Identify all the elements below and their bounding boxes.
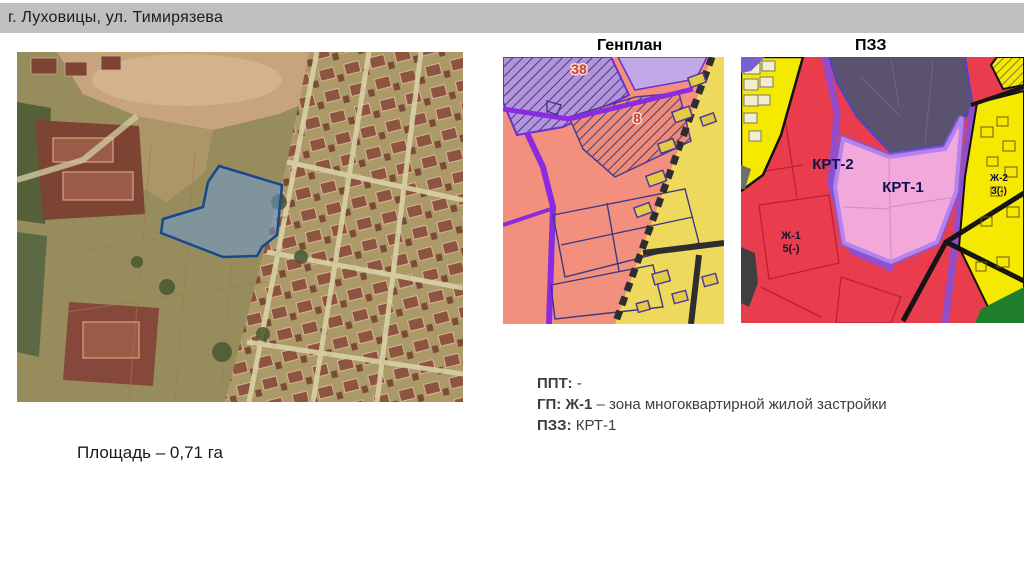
slide-canvas: г. Луховицы, ул. Тимирязева Генплан ПЗЗ	[0, 0, 1024, 574]
pzz-map-title: ПЗЗ	[855, 37, 887, 55]
pzz-label-zh1: Ж-1	[780, 230, 801, 242]
info-line-pzz: ПЗЗ: КРТ-1	[537, 415, 887, 436]
pzz-label-krt2: КРТ-2	[812, 156, 853, 173]
genplan-map-image: 38 8	[503, 57, 724, 324]
info-ppt-value: -	[573, 375, 582, 392]
genplan-map-title: Генплан	[597, 37, 662, 55]
pzz-label-zh2: Ж-2	[989, 173, 1008, 184]
plot-area-label: Площадь – 0,71 га	[77, 443, 223, 463]
info-ppt-label: ППТ:	[537, 375, 573, 392]
header-bar: г. Луховицы, ул. Тимирязева	[0, 3, 1024, 33]
pzz-label-krt1: КРТ-1	[882, 179, 923, 196]
pzz-label-zh1-floors: 5(-)	[782, 243, 799, 255]
zoning-info-block: ППТ: - ГП: Ж-1 – зона многоквартирной жи…	[537, 373, 887, 436]
info-gp-value: – зона многоквартирной жилой застройки	[592, 396, 886, 413]
pzz-label-zh2-floors: 3(-)	[991, 186, 1007, 197]
pzz-map-image: КРТ-2 КРТ-1 Ж-1 5(-) Ж-2 3(-)	[741, 57, 1024, 323]
genplan-label-38: 38	[571, 61, 587, 77]
slide-title: г. Луховицы, ул. Тимирязева	[0, 9, 223, 27]
aerial-photo-image	[17, 52, 463, 402]
info-line-ppt: ППТ: -	[537, 373, 887, 394]
pzz-map: КРТ-2 КРТ-1 Ж-1 5(-) Ж-2 3(-)	[741, 57, 1024, 323]
genplan-map: 38 8	[503, 57, 724, 324]
info-gp-label: ГП: Ж-1	[537, 396, 592, 413]
info-pzz-label: ПЗЗ:	[537, 417, 572, 434]
info-pzz-value: КРТ-1	[572, 417, 617, 434]
aerial-photo	[17, 52, 463, 402]
info-line-gp: ГП: Ж-1 – зона многоквартирной жилой зас…	[537, 394, 887, 415]
genplan-label-8: 8	[633, 110, 641, 126]
